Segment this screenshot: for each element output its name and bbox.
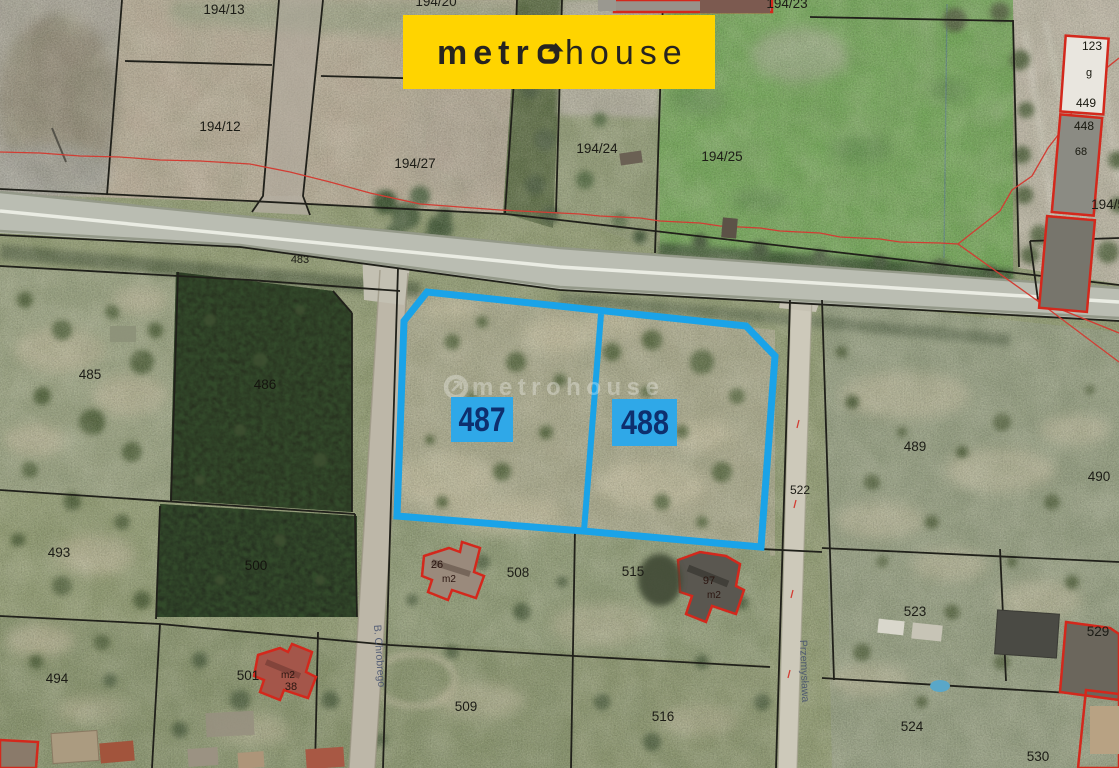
svg-text:194/23: 194/23 xyxy=(766,0,807,11)
svg-text:metr: metr xyxy=(437,34,535,72)
svg-text:38: 38 xyxy=(285,681,297,693)
svg-text:449: 449 xyxy=(1076,96,1096,110)
svg-text:523: 523 xyxy=(904,604,927,619)
svg-text:194/27: 194/27 xyxy=(394,156,435,171)
svg-text:501: 501 xyxy=(237,668,260,683)
svg-text:house: house xyxy=(565,34,688,72)
svg-text:metrohouse: metrohouse xyxy=(472,374,664,401)
svg-text:194/13: 194/13 xyxy=(203,2,244,17)
svg-text:123: 123 xyxy=(1082,39,1102,53)
svg-text:487: 487 xyxy=(459,401,506,439)
svg-text:194/24: 194/24 xyxy=(576,141,618,156)
svg-text:524: 524 xyxy=(901,719,924,734)
svg-text:490: 490 xyxy=(1088,469,1111,484)
svg-text:488: 488 xyxy=(621,404,669,442)
svg-text:m2: m2 xyxy=(442,574,456,585)
svg-text:448: 448 xyxy=(1074,119,1094,133)
svg-text:483: 483 xyxy=(291,254,309,266)
svg-text:509: 509 xyxy=(455,699,478,714)
svg-text:515: 515 xyxy=(622,564,645,579)
svg-text:485: 485 xyxy=(79,367,102,382)
svg-text:500: 500 xyxy=(245,558,268,573)
svg-text:493: 493 xyxy=(48,545,71,560)
svg-text:m2: m2 xyxy=(707,590,721,601)
svg-text:m2: m2 xyxy=(281,670,295,681)
svg-text:g: g xyxy=(1086,67,1092,79)
svg-text:522: 522 xyxy=(790,483,810,497)
svg-text:530: 530 xyxy=(1027,749,1050,764)
svg-text:26: 26 xyxy=(431,559,443,571)
svg-text:508: 508 xyxy=(507,565,530,580)
svg-text:194/25: 194/25 xyxy=(701,149,742,164)
svg-text:194/12: 194/12 xyxy=(199,119,240,134)
svg-text:486: 486 xyxy=(254,377,277,392)
svg-text:97: 97 xyxy=(703,575,715,587)
svg-text:194/20: 194/20 xyxy=(415,0,456,9)
svg-text:68: 68 xyxy=(1075,146,1087,158)
svg-text:489: 489 xyxy=(904,439,927,454)
svg-text:494: 494 xyxy=(46,671,69,686)
svg-text:516: 516 xyxy=(652,709,675,724)
svg-text:529: 529 xyxy=(1087,624,1110,639)
svg-text:194/5: 194/5 xyxy=(1091,197,1119,212)
svg-text:Przemysława: Przemysława xyxy=(797,640,811,703)
